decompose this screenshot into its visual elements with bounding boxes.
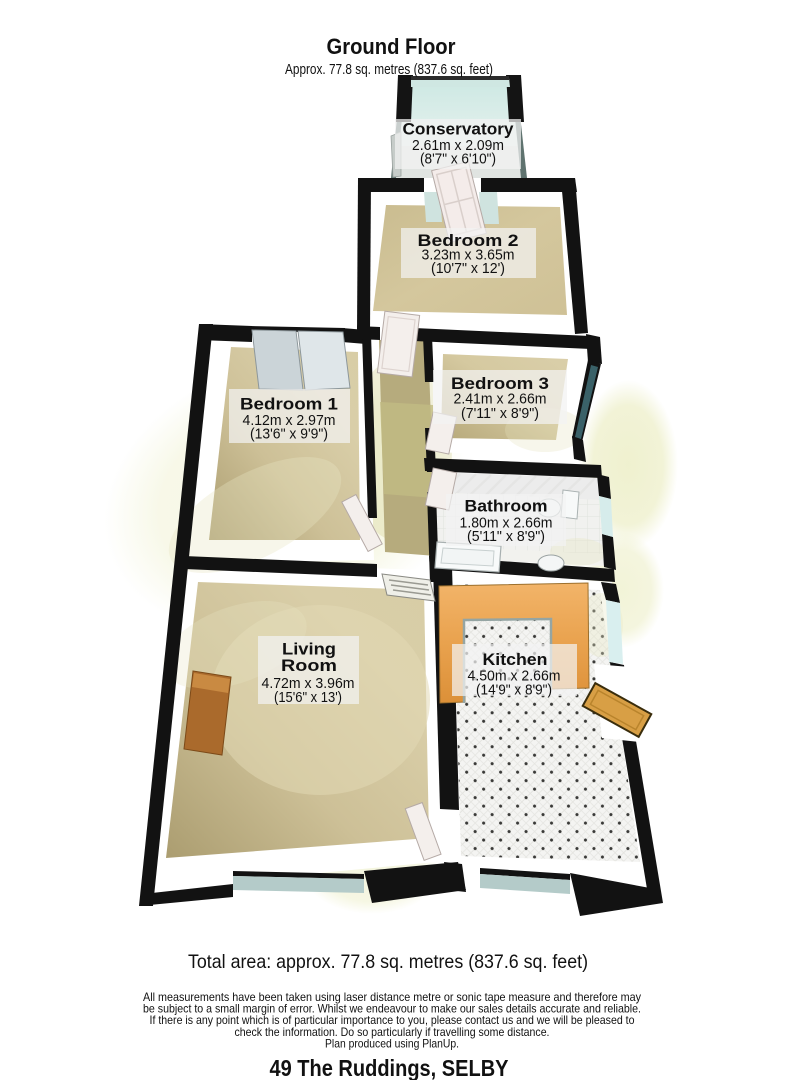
- svg-text:49 The Ruddings, SELBY: 49 The Ruddings, SELBY: [270, 1055, 509, 1080]
- svg-text:(8'7" x 6'10"): (8'7" x 6'10"): [420, 152, 496, 168]
- svg-text:Conservatory: Conservatory: [403, 120, 515, 139]
- svg-text:Room: Room: [281, 656, 337, 675]
- svg-text:Approx. 77.8 sq. metres (837.6: Approx. 77.8 sq. metres (837.6 sq. feet): [285, 61, 493, 78]
- svg-text:Ground Floor: Ground Floor: [327, 34, 456, 59]
- svg-text:(5'11" x 8'9"): (5'11" x 8'9"): [467, 529, 545, 545]
- svg-text:Plan produced using PlanUp.: Plan produced using PlanUp.: [325, 1038, 459, 1051]
- svg-text:Bedroom 3: Bedroom 3: [451, 374, 549, 393]
- svg-text:(7'11" x 8'9"): (7'11" x 8'9"): [461, 406, 539, 422]
- svg-text:Kitchen: Kitchen: [483, 650, 548, 669]
- svg-text:(10'7" x 12'): (10'7" x 12'): [431, 261, 505, 277]
- svg-text:Total area: approx. 77.8 sq. m: Total area: approx. 77.8 sq. metres (837…: [188, 951, 588, 973]
- svg-text:(15'6" x 13'): (15'6" x 13'): [274, 690, 342, 706]
- svg-text:Bedroom 1: Bedroom 1: [240, 395, 338, 414]
- svg-text:(14'9" x 8'9"): (14'9" x 8'9"): [476, 683, 552, 699]
- svg-text:Bathroom: Bathroom: [465, 497, 548, 516]
- svg-text:(13'6" x 9'9"): (13'6" x 9'9"): [250, 427, 328, 443]
